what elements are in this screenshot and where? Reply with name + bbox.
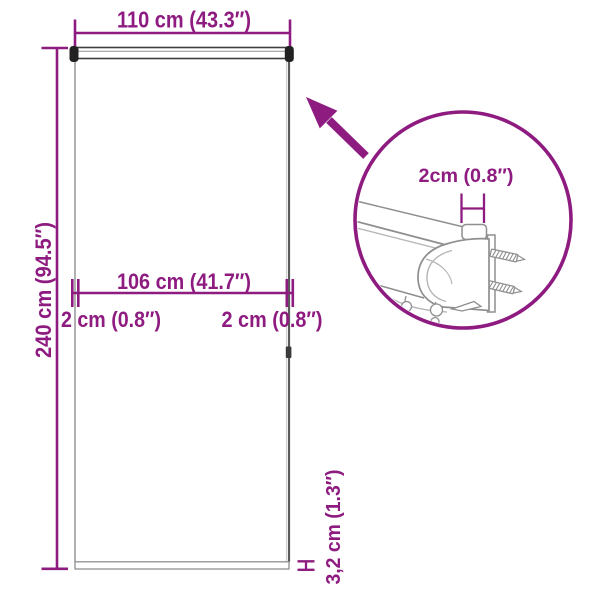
cord-lock <box>286 347 292 359</box>
dimension-bottom-bar-height: 3,2 cm (1.3″) <box>298 470 346 585</box>
bottom-weight-bar <box>75 562 289 569</box>
dimension-fabric-width: 106 cm (41.7″) 2 cm (0.8″) 2 cm (0.8″) <box>61 269 323 332</box>
top-cassette-bar <box>74 48 292 59</box>
diagram-canvas: 110 cm (43.3″) 240 cm (94.5″) 106 cm (41… <box>0 0 600 600</box>
right-end-cap <box>285 46 294 62</box>
dimension-total-width: 110 cm (43.3″) <box>75 7 290 47</box>
fabric-width-label: 106 cm (41.7″) <box>117 269 251 294</box>
total-width-label: 110 cm (43.3″) <box>117 7 251 33</box>
mounting-tab <box>462 225 487 240</box>
right-gap-label: 2 cm (0.8″) <box>222 307 323 332</box>
left-end-cap <box>70 46 79 62</box>
bracket-depth-label: 2cm (0.8″) <box>419 165 514 187</box>
roller-blind-dimension-diagram: 110 cm (43.3″) 240 cm (94.5″) 106 cm (41… <box>0 0 600 600</box>
detail-bubble: 2cm (0.8″) <box>347 112 571 328</box>
total-height-label: 240 cm (94.5″) <box>31 222 56 358</box>
left-gap-label: 2 cm (0.8″) <box>61 307 161 332</box>
bottom-bar-height-label: 3,2 cm (1.3″) <box>323 470 345 585</box>
zoom-arrow-icon <box>306 97 366 156</box>
